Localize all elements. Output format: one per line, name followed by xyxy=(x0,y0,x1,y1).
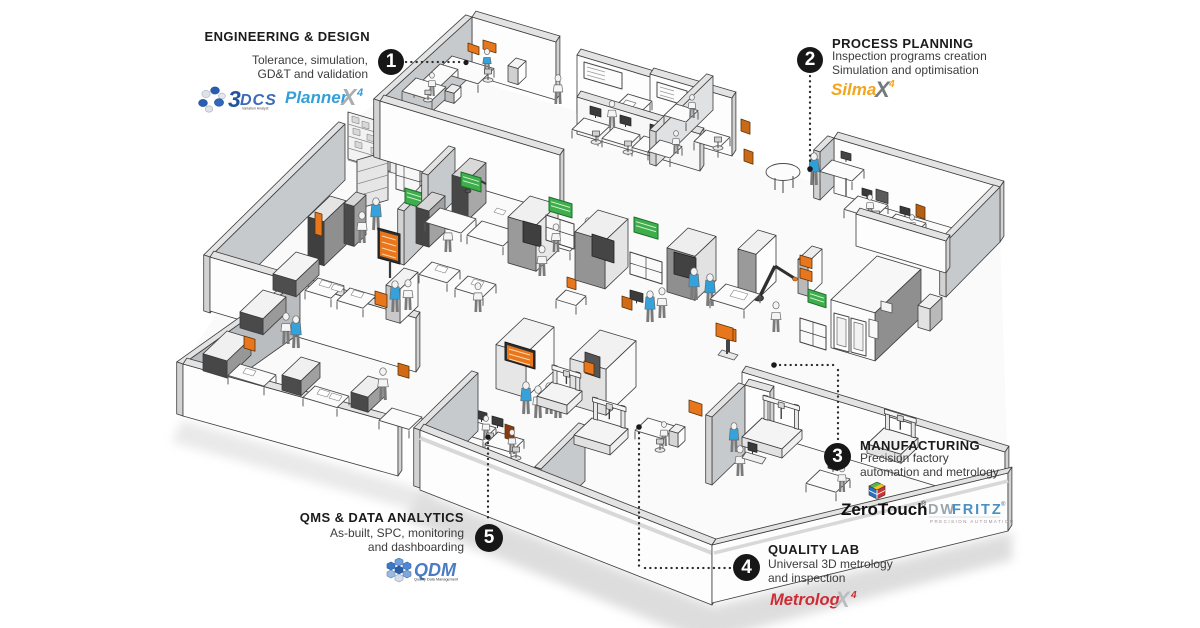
svg-text:X: X xyxy=(833,589,851,611)
svg-text:4: 4 xyxy=(356,87,363,99)
svg-text:®: ® xyxy=(921,500,927,508)
svg-text:Silma: Silma xyxy=(831,80,876,99)
svg-text:Planner: Planner xyxy=(285,88,349,107)
svg-text:ZeroTouch: ZeroTouch xyxy=(841,500,928,519)
svg-text:Quality Data Management: Quality Data Management xyxy=(414,578,459,582)
svg-text:Metrolog: Metrolog xyxy=(770,591,840,609)
svg-text:PRECISION AUTOMATION: PRECISION AUTOMATION xyxy=(930,519,1015,524)
svg-text:Variation Analyst: Variation Analyst xyxy=(242,107,269,111)
svg-text:4: 4 xyxy=(850,590,857,601)
svg-text:®: ® xyxy=(1001,501,1006,508)
svg-text:FRITZ: FRITZ xyxy=(952,502,1003,518)
svg-text:X: X xyxy=(339,84,358,110)
svg-text:4: 4 xyxy=(888,79,895,90)
